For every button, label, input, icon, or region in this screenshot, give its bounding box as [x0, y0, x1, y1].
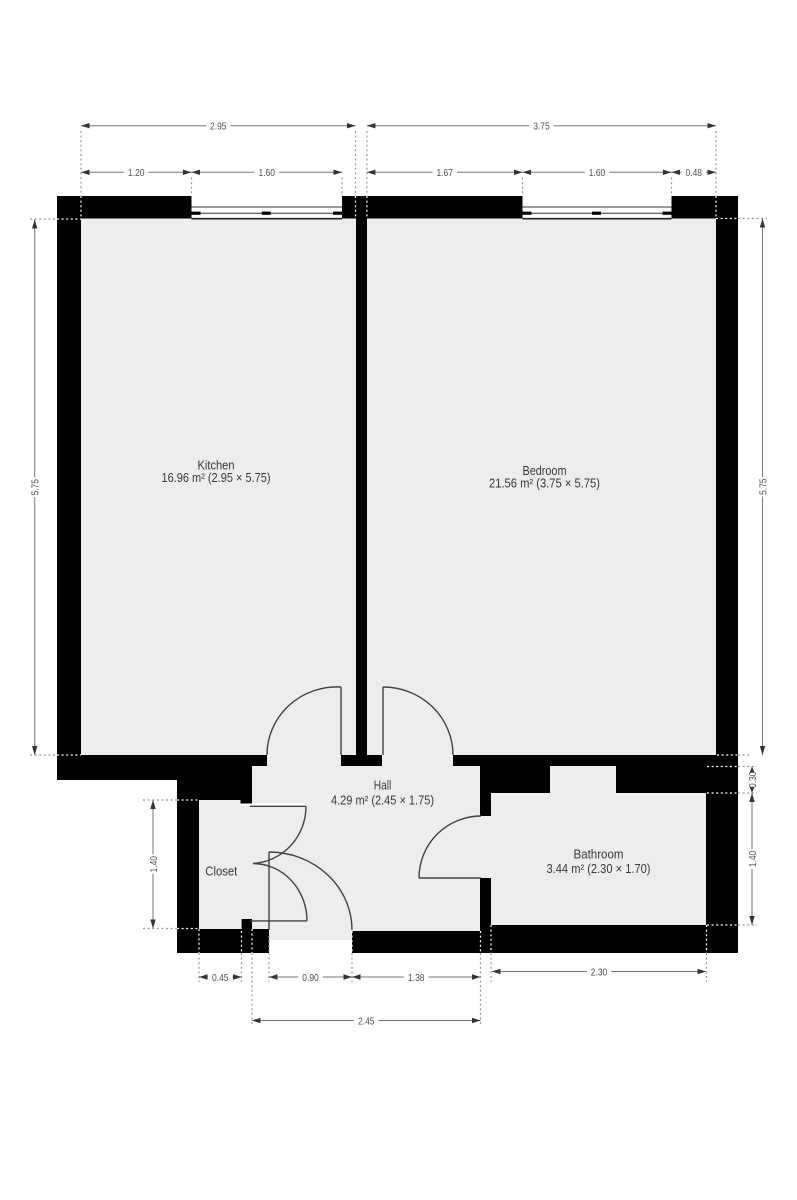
svg-text:3.75: 3.75	[533, 121, 550, 133]
svg-text:1.60: 1.60	[259, 167, 276, 179]
svg-text:1.20: 1.20	[128, 167, 145, 179]
svg-text:16.96 m² (2.95 × 5.75): 16.96 m² (2.95 × 5.75)	[162, 471, 271, 485]
svg-text:5.75: 5.75	[757, 478, 769, 495]
svg-text:0.45: 0.45	[212, 972, 229, 984]
svg-text:Bathroom: Bathroom	[574, 847, 624, 861]
svg-text:0.48: 0.48	[686, 167, 703, 179]
svg-text:1.40: 1.40	[747, 851, 759, 868]
svg-text:0.90: 0.90	[302, 972, 319, 984]
svg-text:1.40: 1.40	[148, 856, 160, 873]
svg-text:0.30: 0.30	[747, 771, 759, 788]
svg-text:2.45: 2.45	[358, 1015, 375, 1027]
svg-text:1.67: 1.67	[436, 167, 453, 179]
svg-text:1.38: 1.38	[408, 972, 425, 984]
svg-text:2.95: 2.95	[210, 121, 227, 133]
svg-text:21.56 m² (3.75 × 5.75): 21.56 m² (3.75 × 5.75)	[489, 476, 600, 490]
svg-text:1.60: 1.60	[589, 167, 606, 179]
svg-text:2.30: 2.30	[591, 966, 608, 978]
svg-text:5.75: 5.75	[29, 479, 41, 496]
svg-text:4.29 m² (2.45 × 1.75): 4.29 m² (2.45 × 1.75)	[331, 793, 434, 807]
svg-text:3.44 m² (2.30 × 1.70): 3.44 m² (2.30 × 1.70)	[547, 862, 651, 876]
svg-text:Closet: Closet	[205, 865, 237, 879]
svg-text:Hall: Hall	[374, 778, 392, 792]
